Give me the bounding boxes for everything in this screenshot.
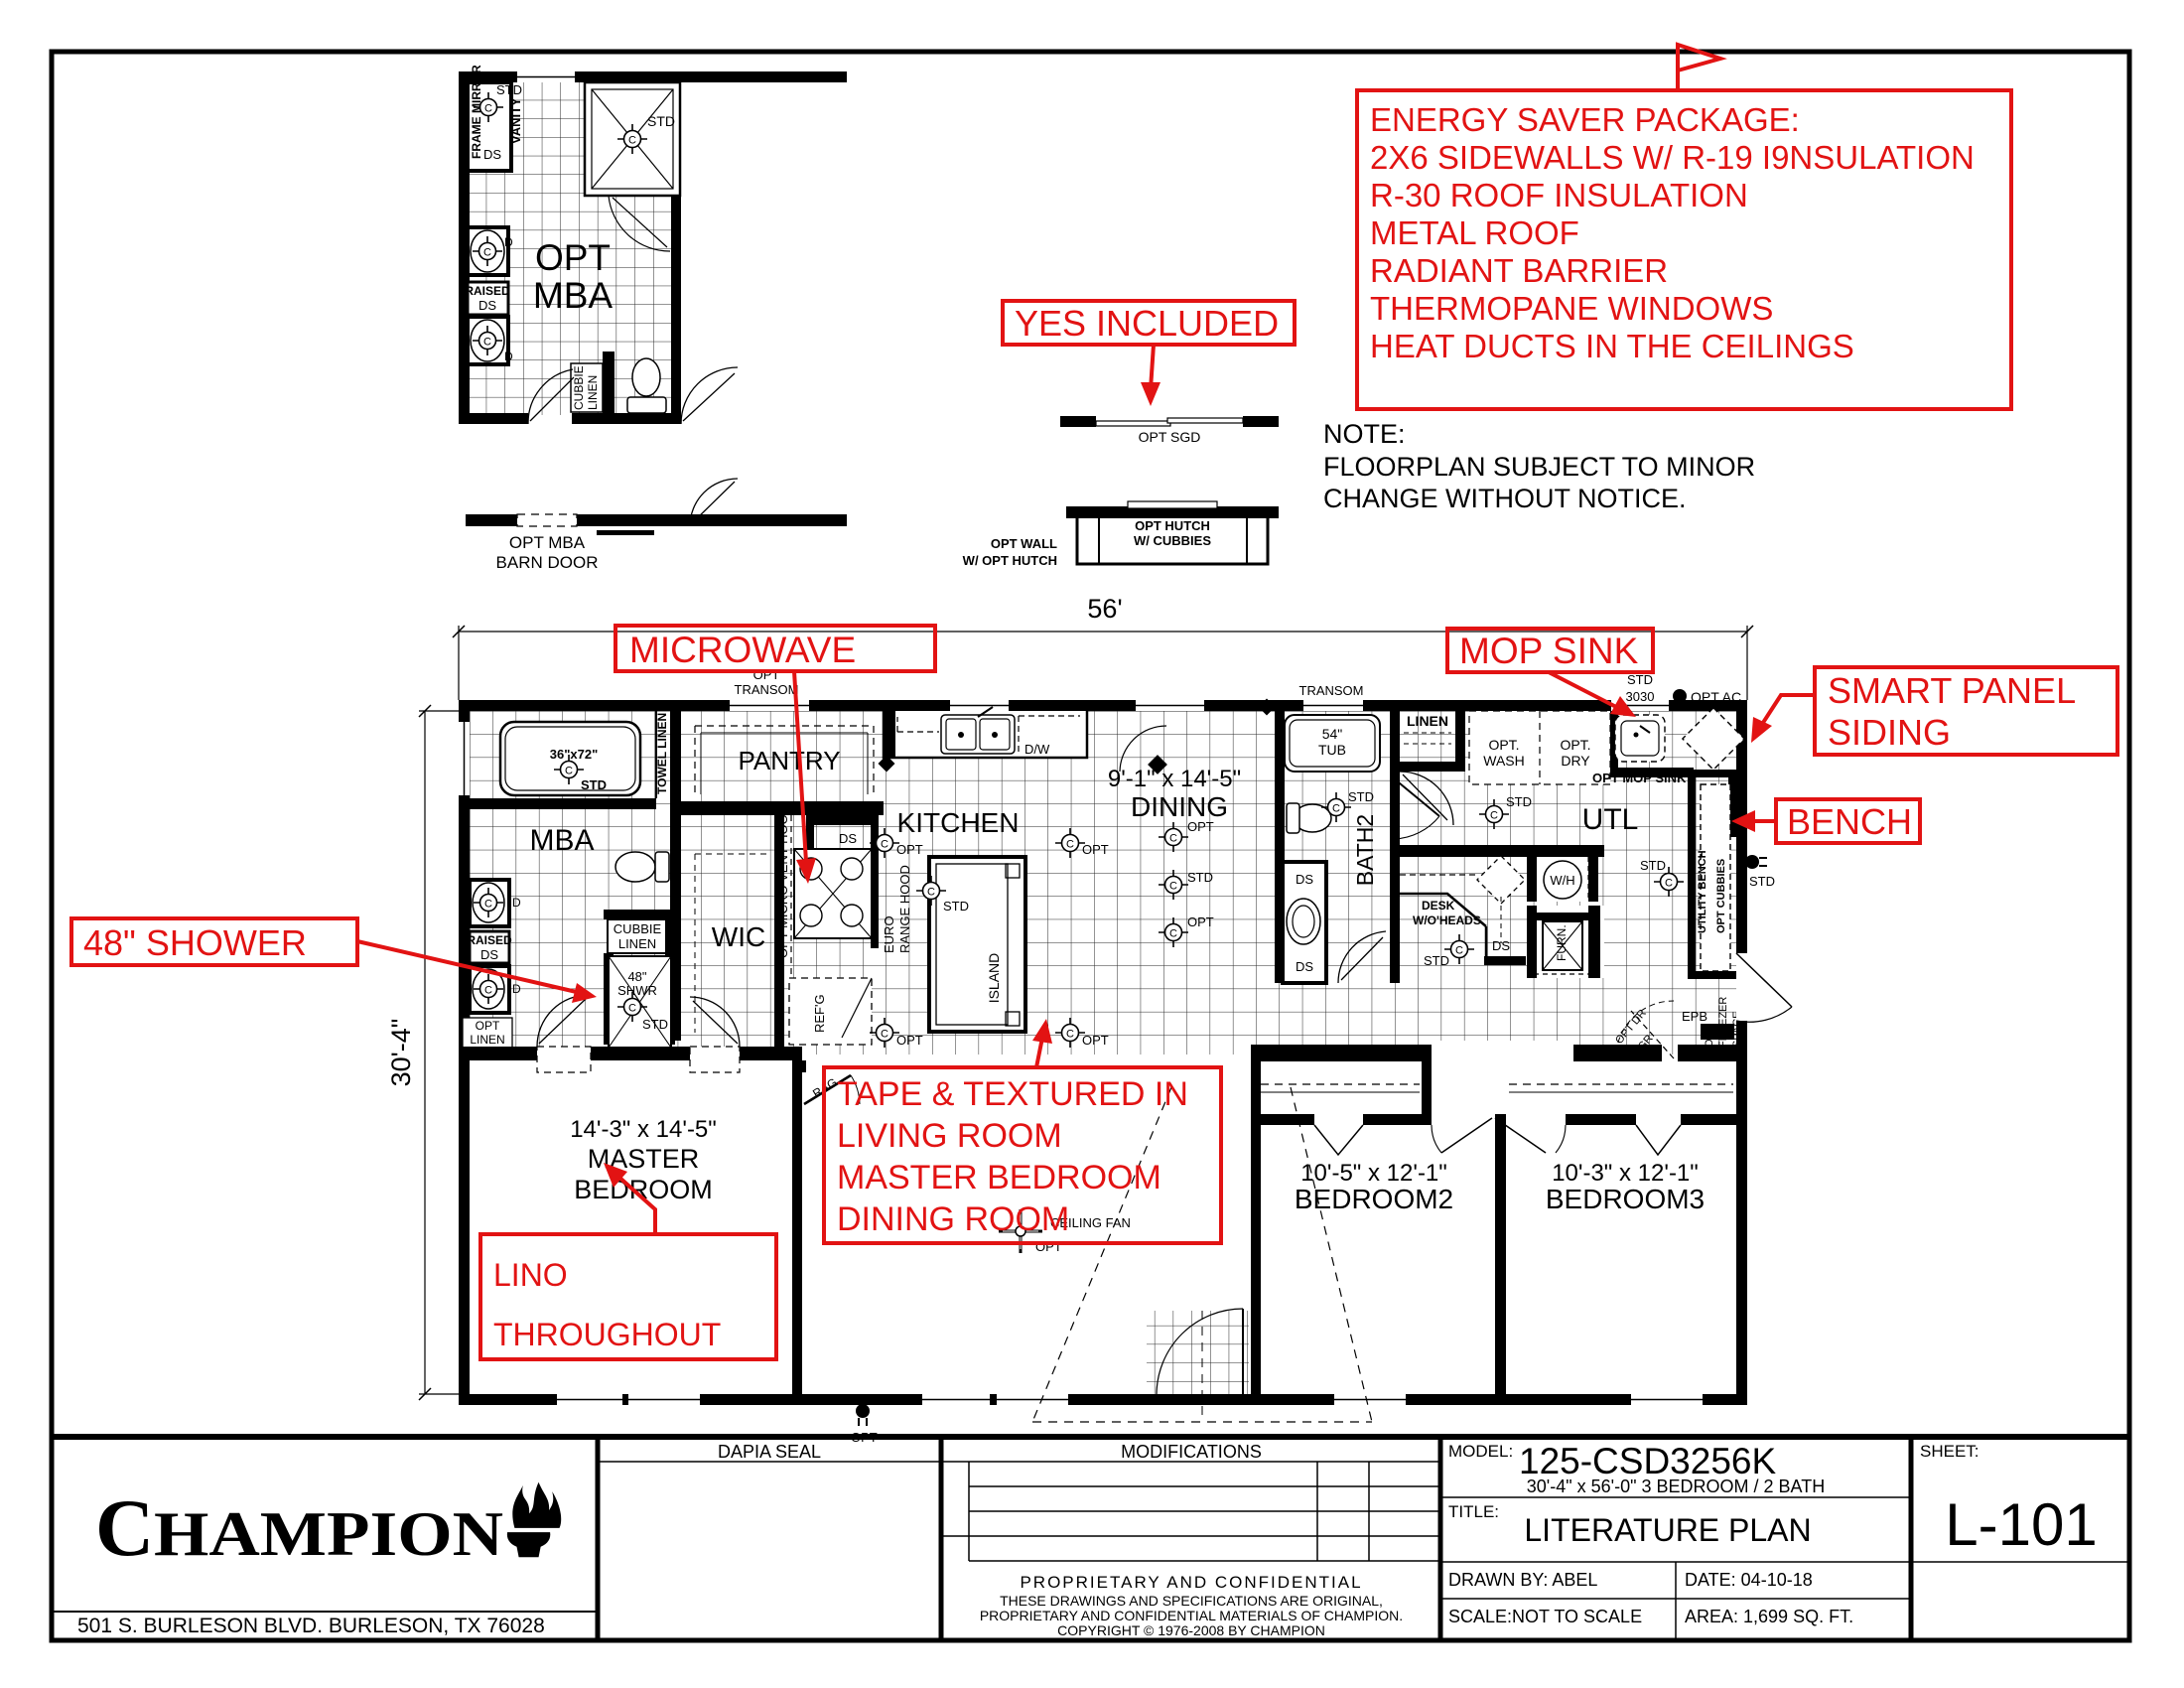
svg-text:VANITY: VANITY [508, 97, 523, 144]
svg-text:OPT: OPT [535, 237, 611, 278]
svg-text:EURO: EURO [882, 915, 896, 953]
svg-text:3030: 3030 [1626, 689, 1655, 704]
svg-text:MASTER: MASTER [588, 1144, 700, 1174]
svg-text:RADIANT BARRIER: RADIANT BARRIER [1370, 252, 1668, 289]
svg-text:METAL ROOF: METAL ROOF [1370, 214, 1579, 251]
svg-text:COPYRIGHT © 1976-2008 BY CHAMP: COPYRIGHT © 1976-2008 BY CHAMPION [1057, 1622, 1325, 1638]
svg-text:W/H: W/H [1550, 873, 1574, 888]
svg-text:TAPE & TEXTURED IN: TAPE & TEXTURED IN [837, 1075, 1188, 1113]
svg-text:W/O'HEADS: W/O'HEADS [1413, 914, 1481, 927]
svg-text:R-30 ROOF INSULATION: R-30 ROOF INSULATION [1370, 177, 1748, 213]
svg-text:D: D [504, 350, 513, 363]
svg-text:TOWEL LINEN: TOWEL LINEN [655, 713, 669, 794]
svg-text:OPT: OPT [1187, 914, 1214, 929]
svg-text:CHANGE WITHOUT NOTICE.: CHANGE WITHOUT NOTICE. [1323, 484, 1687, 513]
svg-text:48": 48" [627, 969, 646, 984]
svg-text:RAISED: RAISED [465, 284, 510, 298]
svg-text:BATH2: BATH2 [1352, 814, 1378, 886]
svg-text:48" SHOWER: 48" SHOWER [83, 922, 307, 963]
svg-text:PROPRIETARY AND CONFIDENTIAL: PROPRIETARY AND CONFIDENTIAL [1020, 1573, 1362, 1592]
svg-text:HAMPION: HAMPION [154, 1498, 503, 1569]
svg-text:PANTRY: PANTRY [738, 746, 840, 775]
svg-text:STD: STD [642, 1017, 668, 1032]
svg-text:DS: DS [839, 831, 857, 846]
svg-text:ENERGY SAVER PACKAGE:: ENERGY SAVER PACKAGE: [1370, 101, 1800, 138]
svg-text:LINO: LINO [493, 1257, 568, 1293]
svg-text:REF'G: REF'G [812, 994, 827, 1033]
svg-text:DRAWN BY: ABEL: DRAWN BY: ABEL [1448, 1570, 1597, 1590]
svg-text:MOP SINK: MOP SINK [1459, 631, 1639, 671]
svg-text:OPT SGD: OPT SGD [1139, 429, 1201, 445]
svg-text:LINEN: LINEN [1407, 713, 1448, 729]
svg-text:OPT HUTCH: OPT HUTCH [1135, 518, 1210, 533]
svg-text:AREA: 1,699 SQ. FT.: AREA: 1,699 SQ. FT. [1685, 1607, 1853, 1626]
svg-text:STD: STD [1348, 789, 1374, 804]
svg-text:ISLAND: ISLAND [986, 953, 1002, 1004]
svg-text:UTL: UTL [1582, 803, 1639, 836]
svg-text:D: D [512, 982, 521, 996]
svg-text:D/W: D/W [1024, 742, 1050, 757]
svg-text:MBA: MBA [533, 275, 614, 316]
svg-text:FURN.: FURN. [1555, 924, 1569, 961]
svg-text:EPB: EPB [1682, 1009, 1707, 1024]
svg-text:10'-3" x 12'-1": 10'-3" x 12'-1" [1552, 1160, 1699, 1187]
svg-text:BARN DOOR: BARN DOOR [496, 553, 599, 572]
svg-text:DS: DS [1296, 872, 1313, 887]
svg-text:D: D [504, 235, 513, 249]
svg-text:DS: DS [478, 298, 496, 313]
svg-text:SMART PANEL: SMART PANEL [1828, 670, 2076, 711]
svg-text:14'-3" x 14'-5": 14'-3" x 14'-5" [570, 1116, 717, 1143]
svg-text:SHWR: SHWR [617, 983, 657, 998]
svg-text:WIC: WIC [712, 921, 765, 952]
svg-text:STD: STD [1424, 953, 1449, 968]
svg-text:HEAT DUCTS IN THE CEILINGS: HEAT DUCTS IN THE CEILINGS [1370, 328, 1854, 364]
svg-text:LINEN: LINEN [586, 375, 600, 410]
svg-text:CUBBIE: CUBBIE [614, 921, 662, 936]
svg-text:54": 54" [1322, 726, 1343, 742]
svg-text:STD: STD [1640, 858, 1666, 873]
svg-text:30'-4" x 56'-0" 3 BEDROOM / 2: 30'-4" x 56'-0" 3 BEDROOM / 2 BATH [1527, 1477, 1825, 1496]
svg-text:DS: DS [1296, 959, 1313, 974]
svg-text:RAISED: RAISED [467, 933, 512, 947]
svg-text:C: C [95, 1482, 154, 1573]
svg-text:STD: STD [581, 777, 607, 792]
svg-text:MODEL:: MODEL: [1448, 1442, 1513, 1461]
svg-text:OPT AC: OPT AC [1691, 689, 1741, 705]
svg-text:10'-5" x 12'-1": 10'-5" x 12'-1" [1300, 1160, 1447, 1187]
svg-text:OPT: OPT [1187, 819, 1214, 834]
svg-text:OPT.: OPT. [1560, 737, 1590, 753]
svg-text:DINING: DINING [1131, 791, 1228, 822]
svg-text:125-CSD3256K: 125-CSD3256K [1519, 1441, 1776, 1481]
svg-text:OPT: OPT [476, 1019, 500, 1033]
svg-text:D: D [512, 896, 521, 910]
svg-text:YES INCLUDED: YES INCLUDED [1015, 303, 1279, 344]
svg-text:NOTE:: NOTE: [1323, 419, 1406, 449]
svg-text:THESE DRAWINGS AND SPECIFICATI: THESE DRAWINGS AND SPECIFICATIONS ARE OR… [1000, 1593, 1383, 1609]
svg-text:W/ CUBBIES: W/ CUBBIES [1134, 533, 1211, 548]
svg-text:UTILITY BENCH: UTILITY BENCH [1697, 850, 1708, 933]
svg-text:OPT MICRO VENT HOOD: OPT MICRO VENT HOOD [775, 805, 790, 958]
svg-text:DESK: DESK [1422, 899, 1455, 913]
svg-text:TUB: TUB [1318, 742, 1346, 758]
svg-text:STD: STD [647, 113, 675, 129]
svg-text:30'-4": 30'-4" [386, 1019, 416, 1087]
svg-text:STD: STD [1749, 874, 1775, 889]
svg-text:STD: STD [1627, 672, 1653, 687]
svg-text:OPT MOP SINK: OPT MOP SINK [1592, 771, 1687, 785]
svg-text:OPT: OPT [1082, 1033, 1109, 1048]
svg-text:TRANSOM: TRANSOM [735, 682, 799, 697]
svg-text:MICROWAVE: MICROWAVE [629, 630, 856, 670]
svg-text:OPT: OPT [851, 1430, 878, 1445]
svg-text:9'-1" x 14'-5": 9'-1" x 14'-5" [1108, 766, 1241, 792]
svg-text:DINING ROOM: DINING ROOM [837, 1200, 1069, 1238]
svg-text:W/ OPT HUTCH: W/ OPT HUTCH [963, 553, 1057, 568]
svg-text:SIDING: SIDING [1828, 712, 1951, 753]
svg-text:OPT CUBBIES: OPT CUBBIES [1715, 859, 1727, 933]
svg-text:36"x72": 36"x72" [550, 747, 598, 762]
svg-text:OPT: OPT [896, 842, 923, 857]
svg-text:MBA: MBA [529, 824, 594, 857]
svg-text:L-101: L-101 [1945, 1491, 2097, 1558]
svg-text:THERMOPANE WINDOWS: THERMOPANE WINDOWS [1370, 290, 1773, 327]
svg-text:TRANSOM: TRANSOM [1299, 683, 1364, 698]
svg-text:BEDROOM3: BEDROOM3 [1546, 1184, 1705, 1214]
svg-text:DS: DS [483, 147, 501, 162]
svg-text:STD: STD [1187, 870, 1213, 885]
svg-text:OPT: OPT [1082, 842, 1109, 857]
svg-text:2X6 SIDEWALLS W/ R-19 I9NSULAT: 2X6 SIDEWALLS W/ R-19 I9NSULATION [1370, 139, 1975, 176]
svg-text:FLOORPLAN SUBJECT TO MINOR: FLOORPLAN SUBJECT TO MINOR [1323, 452, 1755, 482]
svg-text:OPT: OPT [896, 1033, 923, 1048]
svg-text:LIVING ROOM: LIVING ROOM [837, 1117, 1062, 1155]
svg-text:LITERATURE PLAN: LITERATURE PLAN [1524, 1512, 1811, 1548]
svg-text:DAPIA SEAL: DAPIA SEAL [718, 1442, 821, 1462]
svg-text:DS: DS [480, 947, 498, 962]
svg-text:LINEN: LINEN [470, 1033, 504, 1047]
svg-text:STD: STD [1506, 794, 1532, 809]
svg-text:FREEZER: FREEZER [1717, 997, 1729, 1048]
svg-text:OPT.: OPT. [1488, 737, 1519, 753]
svg-text:LINEN: LINEN [618, 936, 656, 951]
svg-text:DS: DS [1492, 938, 1510, 953]
svg-text:BENCH: BENCH [1787, 801, 1912, 842]
svg-text:KITCHEN: KITCHEN [897, 807, 1020, 838]
svg-text:TITLE:: TITLE: [1448, 1502, 1499, 1521]
svg-text:THROUGHOUT: THROUGHOUT [493, 1317, 721, 1352]
svg-text:OPT MBA: OPT MBA [509, 533, 586, 552]
svg-text:WASH: WASH [1483, 753, 1524, 769]
svg-text:SHEET:: SHEET: [1920, 1442, 1979, 1461]
svg-text:STD: STD [496, 82, 522, 97]
svg-text:PROPRIETARY AND CONFIDENTIAL M: PROPRIETARY AND CONFIDENTIAL MATERIALS O… [980, 1608, 1403, 1623]
svg-text:501 S. BURLESON BLVD. BURLESON: 501 S. BURLESON BLVD. BURLESON, TX 76028 [77, 1615, 545, 1637]
svg-text:MODIFICATIONS: MODIFICATIONS [1121, 1442, 1262, 1462]
svg-text:CUBBIE: CUBBIE [572, 365, 586, 410]
svg-text:SCALE:NOT TO SCALE: SCALE:NOT TO SCALE [1448, 1607, 1642, 1626]
svg-text:STD: STD [943, 899, 969, 914]
svg-text:RANGE HOOD: RANGE HOOD [897, 865, 912, 953]
svg-text:DATE: 04-10-18: DATE: 04-10-18 [1685, 1570, 1813, 1590]
svg-text:DRY: DRY [1561, 753, 1590, 769]
svg-text:56': 56' [1087, 594, 1122, 624]
svg-text:MASTER BEDROOM: MASTER BEDROOM [837, 1159, 1161, 1196]
svg-text:OPT WALL: OPT WALL [991, 536, 1057, 551]
